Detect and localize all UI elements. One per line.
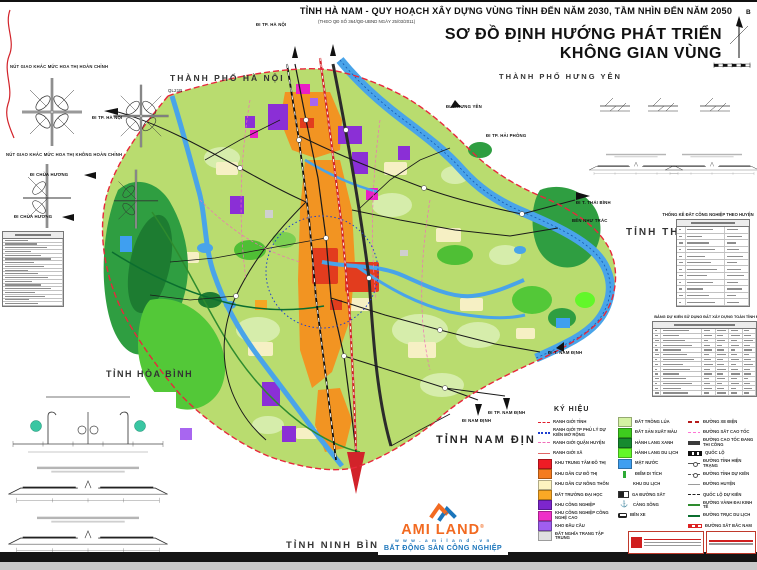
legend-label: ĐẤT SẢN XUẤT MÀU bbox=[635, 430, 688, 435]
table-cell bbox=[702, 372, 715, 376]
table-cell bbox=[702, 348, 715, 352]
legend-swatch bbox=[688, 432, 700, 434]
legend-item: HÀNH LANG XANH bbox=[618, 438, 688, 448]
table-row bbox=[677, 273, 749, 280]
table-cell bbox=[661, 353, 702, 357]
table-row bbox=[677, 234, 749, 241]
legend-label: ĐƯỜNG HUYỆN bbox=[703, 482, 757, 487]
table-cell bbox=[686, 286, 726, 292]
route-label-di-chua-huong-2: ĐI CHÙA HƯƠNG bbox=[14, 214, 52, 219]
table-cell bbox=[3, 295, 63, 298]
table-cell bbox=[743, 353, 756, 357]
legend-item: KHO ĐẦU CẦU bbox=[538, 521, 618, 531]
table-cell bbox=[653, 372, 661, 376]
table-cell bbox=[716, 377, 729, 381]
table-cell bbox=[661, 377, 702, 381]
table-cell bbox=[702, 382, 715, 386]
legend-label: RANH GIỚI QUẬN HUYỆN bbox=[553, 441, 607, 446]
compass-north-label: B bbox=[746, 9, 751, 16]
landuse-table bbox=[652, 321, 757, 397]
legend-swatch bbox=[623, 471, 626, 478]
legend-label: KHO ĐẦU CẦU bbox=[555, 524, 609, 529]
table-row bbox=[677, 293, 749, 300]
legend-label: ĐƯỜNG SẮT BẮC NAM bbox=[705, 524, 757, 529]
table-cell bbox=[661, 386, 702, 390]
legend-item: RANH GIỚI QUẬN HUYỆN bbox=[538, 438, 618, 448]
legend-label: ĐẤT TRỒNG LÚA bbox=[635, 420, 688, 425]
table-cell bbox=[716, 358, 729, 362]
table-cell bbox=[743, 348, 756, 352]
legend-swatch bbox=[618, 491, 629, 498]
legend-label: ĐƯỜNG TỈNH HIỆN TRẠNG bbox=[703, 459, 757, 468]
route-label-di-tp-ha-noi-left: ĐI TP. HÀ NỘI bbox=[92, 115, 122, 120]
table-row bbox=[3, 302, 63, 306]
legend-label: HÀNH LANG XANH bbox=[635, 441, 688, 446]
legend-item: KHU CÔNG NGHIỆP bbox=[538, 500, 618, 510]
table-header bbox=[653, 322, 756, 329]
legend-swatch bbox=[618, 417, 632, 427]
legend-swatch: ⚓ bbox=[618, 502, 630, 509]
table-cell bbox=[3, 243, 63, 246]
table-cell bbox=[661, 391, 702, 395]
legend-item: ĐƯỜNG TRỤC DU LỊCH bbox=[688, 511, 757, 521]
table-cell bbox=[743, 386, 756, 390]
neighbor-label-ninh-binh: TỈNH NINH BÌNH bbox=[286, 540, 388, 551]
table-header bbox=[677, 220, 749, 227]
legend-swatch bbox=[688, 524, 702, 528]
table-cell bbox=[3, 261, 63, 264]
south-route-arrow bbox=[347, 452, 365, 494]
legend-swatch bbox=[538, 521, 552, 531]
table-cell bbox=[716, 372, 729, 376]
legend-column-1: RANH GIỚI TỈNHRANH GIỚI TP PHỦ LÝ DỰ KIẾ… bbox=[538, 417, 618, 542]
logo-brand: AMI LAND® bbox=[401, 523, 485, 538]
stamp-emblem bbox=[631, 537, 642, 548]
table-cell bbox=[725, 286, 749, 292]
table-cell bbox=[3, 269, 63, 272]
legend-item: KHU TRUNG TÂM ĐÔ THỊ bbox=[538, 459, 618, 469]
table-cell bbox=[677, 240, 686, 246]
legend-swatch bbox=[618, 484, 630, 485]
rail-to-hanoi-line bbox=[7, 10, 14, 138]
table-row bbox=[677, 253, 749, 260]
table-cell bbox=[743, 377, 756, 381]
table-row bbox=[677, 260, 749, 267]
table-cell bbox=[716, 348, 729, 352]
legend-swatch bbox=[538, 531, 552, 541]
table-row bbox=[677, 247, 749, 254]
table-cell bbox=[661, 358, 702, 362]
table-cell bbox=[702, 334, 715, 338]
logo-tagline: BẤT ĐỘNG SẢN CÔNG NGHIỆP bbox=[384, 543, 502, 552]
table-cell bbox=[729, 343, 742, 347]
table-cell bbox=[743, 367, 756, 371]
route-label-di-nam-dinh: ĐI NAM ĐỊNH bbox=[462, 418, 491, 423]
table-cell bbox=[653, 367, 661, 371]
table-cell bbox=[677, 286, 686, 292]
legend-swatch bbox=[538, 490, 552, 500]
table-cell bbox=[725, 227, 749, 233]
amiland-logo-icon bbox=[428, 503, 458, 523]
table-cell bbox=[653, 358, 661, 362]
table-cell bbox=[729, 372, 742, 376]
table-cell bbox=[686, 280, 726, 286]
legend-item: ĐƯỜNG SẮT CAO TỐC bbox=[688, 427, 757, 437]
legend-item: ĐƯỜNG SẮT BẮC NAM bbox=[688, 521, 757, 531]
legend-label: KHU TRUNG TÂM ĐÔ THỊ bbox=[555, 461, 609, 466]
table-cell bbox=[653, 391, 661, 395]
table-cell bbox=[743, 391, 756, 395]
table-cell bbox=[686, 293, 726, 299]
document-subtitle: (THEO QĐ SỐ 364/QĐ-UBND NGÀY 25/03/2011) bbox=[318, 19, 415, 24]
table-cell bbox=[653, 329, 661, 333]
legend-swatch bbox=[688, 421, 700, 423]
legend-swatch bbox=[688, 494, 700, 495]
table-cell bbox=[725, 280, 749, 286]
legend-label: ĐƯỜNG XE ĐIỆN bbox=[703, 420, 757, 425]
legend-item: ĐƯỜNG XE ĐIỆN bbox=[688, 417, 757, 427]
table-cell bbox=[653, 362, 661, 366]
legend-label: ĐƯỜNG VÀNH ĐAI KINH TẾ bbox=[703, 501, 757, 510]
legend-label: ĐIỂM DI TÍCH bbox=[635, 472, 688, 477]
table-cell bbox=[661, 329, 702, 333]
legend-item: MẶT NƯỚC bbox=[618, 459, 688, 469]
table-cell bbox=[686, 299, 726, 305]
legend-swatch bbox=[688, 463, 700, 464]
table-cell bbox=[725, 240, 749, 246]
approval-stamp-box bbox=[628, 531, 704, 554]
legend-swatch bbox=[688, 515, 700, 517]
table-cell bbox=[729, 382, 742, 386]
table-cell bbox=[702, 367, 715, 371]
amiland-watermark: AMI LAND® w w w . a m i l a n d . v n BẤ… bbox=[378, 503, 508, 555]
map-title-line1: SƠ ĐỒ ĐỊNH HƯỚNG PHÁT TRIỂN bbox=[430, 26, 722, 44]
table-cell bbox=[653, 343, 661, 347]
table-cell bbox=[686, 227, 726, 233]
route-label-di-tp-hai-phong: ĐI TP. HẢI PHÒNG bbox=[486, 133, 526, 138]
table-cell bbox=[3, 246, 63, 249]
legend-item: ĐẤT TRƯỜNG ĐẠI HỌC bbox=[538, 490, 618, 500]
legend-label: KHU CÔNG NGHIỆP bbox=[555, 503, 609, 508]
legend-item: KHU CÔNG NGHIỆP CÔNG NGHỆ CAO bbox=[538, 511, 618, 521]
table-cell bbox=[653, 339, 661, 343]
table-cell bbox=[743, 362, 756, 366]
table-cell bbox=[3, 291, 63, 294]
legend-label: CẢNG SÔNG bbox=[633, 503, 687, 508]
legend-label: RANH GIỚI XÃ bbox=[553, 451, 607, 456]
table-cell bbox=[729, 353, 742, 357]
legend-label: QUỐC LỘ bbox=[705, 451, 757, 456]
table-cell bbox=[729, 339, 742, 343]
legend-label: RANH GIỚI TỈNH bbox=[553, 420, 607, 425]
legend-item: RANH GIỚI TP PHỦ LÝ DỰ KIẾN MỞ RỘNG bbox=[538, 427, 618, 437]
project-list-table bbox=[2, 231, 64, 307]
table-cell bbox=[743, 329, 756, 333]
table-cell bbox=[729, 329, 742, 333]
table-cell bbox=[725, 260, 749, 266]
table-cell bbox=[716, 391, 729, 395]
legend-item: ĐẤT SẢN XUẤT MÀU bbox=[618, 427, 688, 437]
table-cell bbox=[653, 353, 661, 357]
note-box bbox=[706, 531, 756, 554]
table-cell bbox=[716, 343, 729, 347]
route-label-di-tp-ha-noi-top: ĐI TP. HÀ NỘI bbox=[256, 22, 286, 27]
table-cell bbox=[3, 276, 63, 279]
legend-swatch bbox=[618, 448, 632, 458]
legend-label: ĐƯỜNG TỈNH DỰ KIẾN bbox=[703, 472, 757, 477]
table-cell bbox=[702, 329, 715, 333]
table-row bbox=[677, 299, 749, 306]
legend-swatch bbox=[688, 441, 700, 444]
legend-label: KHU DU LỊCH bbox=[633, 482, 687, 487]
table-cell bbox=[702, 358, 715, 362]
table-row bbox=[677, 227, 749, 234]
table-cell bbox=[653, 348, 661, 352]
table-cell bbox=[686, 260, 726, 266]
table-cell bbox=[686, 234, 726, 240]
legend-title: KÝ HIỆU bbox=[554, 406, 757, 413]
table-cell bbox=[677, 247, 686, 253]
scale-bar bbox=[714, 63, 750, 69]
legend-swatch bbox=[618, 428, 632, 438]
table-cell bbox=[702, 343, 715, 347]
planning-map-sheet: TỈNH HÀ NAM - QUY HOẠCH XÂY DỰNG VÙNG TỈ… bbox=[0, 0, 757, 570]
legend-swatch bbox=[688, 451, 702, 456]
table-cell bbox=[686, 273, 726, 279]
table-cell bbox=[3, 280, 63, 283]
legend-swatch bbox=[618, 438, 632, 448]
table-cell bbox=[661, 343, 702, 347]
table-cell bbox=[677, 253, 686, 259]
table-cell bbox=[661, 334, 702, 338]
table-cell bbox=[729, 334, 742, 338]
legend-swatch bbox=[538, 459, 552, 469]
table-cell bbox=[702, 391, 715, 395]
table-cell bbox=[661, 339, 702, 343]
document-title: TỈNH HÀ NAM - QUY HOẠCH XÂY DỰNG VÙNG TỈ… bbox=[290, 6, 742, 16]
legend-item: QUỐC LỘ DỰ KIẾN bbox=[688, 490, 757, 500]
legend-label: KHU CÔNG NGHIỆP CÔNG NGHỆ CAO bbox=[555, 511, 609, 520]
legend-swatch bbox=[538, 453, 550, 454]
legend-label: ĐƯỜNG CAO TỐC ĐANG THI CÔNG bbox=[703, 438, 757, 447]
table-cell bbox=[3, 302, 63, 305]
legend-item: RANH GIỚI TỈNH bbox=[538, 417, 618, 427]
table-cell bbox=[686, 247, 726, 253]
legend-label: HÀNH LANG DU LỊCH bbox=[635, 451, 688, 456]
legend-item: ĐƯỜNG CAO TỐC ĐANG THI CÔNG bbox=[688, 438, 757, 448]
legend-label: RANH GIỚI TP PHỦ LÝ DỰ KIẾN MỞ RỘNG bbox=[553, 428, 607, 437]
table-row bbox=[677, 266, 749, 273]
landuse-table-title: BẢNG DỰ KIẾN SỬ DỤNG ĐẤT XÂY DỰNG TOÀN T… bbox=[654, 314, 752, 319]
table-cell bbox=[743, 358, 756, 362]
table-cell bbox=[702, 362, 715, 366]
table-header bbox=[3, 232, 63, 239]
table-cell bbox=[661, 382, 702, 386]
legend-swatch bbox=[538, 480, 552, 490]
interchange-title-partial: NÚT GIAO KHÁC MỨC HOA THỊ KHÔNG HOÀN CHỈ… bbox=[6, 152, 122, 157]
legend-item: ĐIỂM DI TÍCH bbox=[618, 469, 688, 479]
legend-item: QUỐC LỘ bbox=[688, 448, 757, 458]
table-cell bbox=[3, 258, 63, 261]
legend-swatch bbox=[618, 513, 627, 518]
legend-item: ĐẤT NGHĨA TRANG TẬP TRUNG bbox=[538, 531, 618, 541]
legend-swatch bbox=[688, 474, 700, 475]
route-label-di-t-thai-binh: ĐI T. THÁI BÌNH bbox=[576, 200, 611, 205]
legend-column-3: ĐƯỜNG XE ĐIỆNĐƯỜNG SẮT CAO TỐCĐƯỜNG CAO … bbox=[688, 417, 757, 542]
table-cell bbox=[3, 265, 63, 268]
table-cell bbox=[725, 293, 749, 299]
table-cell bbox=[686, 240, 726, 246]
table-cell bbox=[743, 372, 756, 376]
table-cell bbox=[743, 382, 756, 386]
table-cell bbox=[725, 234, 749, 240]
table-cell bbox=[743, 339, 756, 343]
route-label-di-t-hung-yen: ĐI T. HƯNG YÊN bbox=[446, 104, 482, 109]
table-cell bbox=[729, 358, 742, 362]
table-cell bbox=[3, 287, 63, 290]
table-cell bbox=[743, 334, 756, 338]
table-cell bbox=[729, 362, 742, 366]
table-cell bbox=[677, 260, 686, 266]
legend-item: ⚓CẢNG SÔNG bbox=[618, 500, 688, 510]
table-cell bbox=[653, 386, 661, 390]
table-cell bbox=[3, 239, 63, 242]
legend-item: ĐẤT TRỒNG LÚA bbox=[618, 417, 688, 427]
route-label-di-t-nam-dinh: ĐI T. NAM ĐỊNH bbox=[548, 350, 582, 355]
table-cell bbox=[677, 293, 686, 299]
table-cell bbox=[725, 273, 749, 279]
legend-item: KHU DÂN CƯ NÔNG THÔN bbox=[538, 479, 618, 489]
legend-label: KHU DÂN CƯ ĐÔ THỊ bbox=[555, 472, 609, 477]
table-cell bbox=[677, 280, 686, 286]
neighbor-label-hung-yen: THÀNH PHỐ HƯNG YÊN bbox=[499, 72, 622, 81]
legend-label: GA ĐƯỜNG SẮT bbox=[632, 493, 686, 498]
legend-swatch bbox=[688, 504, 700, 506]
legend-swatch bbox=[538, 422, 550, 423]
table-cell bbox=[716, 329, 729, 333]
table-cell bbox=[729, 386, 742, 390]
interchange-title-full: NÚT GIAO KHÁC MỨC HOA THỊ HOÀN CHỈNH bbox=[10, 64, 108, 69]
table-cell bbox=[686, 253, 726, 259]
legend-label: ĐƯỜNG TRỤC DU LỊCH bbox=[703, 513, 757, 518]
table-cell bbox=[653, 377, 661, 381]
table-cell bbox=[743, 343, 756, 347]
route-label-di-tp-nam-dinh: ĐI TP. NAM ĐỊNH bbox=[488, 410, 525, 415]
table-cell bbox=[702, 377, 715, 381]
map-title-line2: KHÔNG GIAN VÙNG bbox=[430, 45, 722, 63]
neighbor-label-hoa-binh: TỈNH HÒA BÌNH bbox=[106, 369, 193, 379]
table-cell bbox=[716, 367, 729, 371]
legend-swatch bbox=[538, 511, 552, 521]
legend-swatch bbox=[538, 469, 552, 479]
table-row bbox=[677, 280, 749, 287]
window-edge bbox=[0, 562, 757, 570]
legend-item: HÀNH LANG DU LỊCH bbox=[618, 448, 688, 458]
table-cell bbox=[716, 382, 729, 386]
legend-item: GA ĐƯỜNG SẮT bbox=[618, 490, 688, 500]
table-cell bbox=[653, 334, 661, 338]
table-cell bbox=[729, 367, 742, 371]
legend-item: ĐƯỜNG TỈNH DỰ KIẾN bbox=[688, 469, 757, 479]
table-cell bbox=[3, 272, 63, 275]
legend-columns: RANH GIỚI TỈNHRANH GIỚI TP PHỦ LÝ DỰ KIẾ… bbox=[534, 417, 757, 542]
road-label-ql21b: QL21B bbox=[168, 88, 182, 93]
table-row bbox=[677, 286, 749, 293]
legend-swatch bbox=[538, 432, 550, 434]
table-cell bbox=[716, 339, 729, 343]
table-row bbox=[677, 240, 749, 247]
legend-label: QUỐC LỘ DỰ KIẾN bbox=[703, 493, 757, 498]
industry-table-title: THỐNG KÊ ĐẤT CÔNG NGHIỆP THEO HUYỆN bbox=[660, 212, 756, 217]
sheet-top-border bbox=[0, 0, 757, 2]
table-cell bbox=[702, 339, 715, 343]
legend-item: KHU DU LỊCH bbox=[618, 479, 688, 489]
table-cell bbox=[661, 362, 702, 366]
legend-item: BẾN XE bbox=[618, 511, 688, 521]
table-cell bbox=[661, 367, 702, 371]
table-cell bbox=[677, 234, 686, 240]
neighbor-label-nam-dinh: TỈNH NAM ĐỊNH bbox=[436, 434, 546, 446]
table-cell bbox=[3, 299, 63, 302]
table-cell bbox=[661, 372, 702, 376]
table-cell bbox=[725, 299, 749, 305]
legend-column-2: ĐẤT TRỒNG LÚAĐẤT SẢN XUẤT MÀUHÀNH LANG X… bbox=[618, 417, 688, 542]
legend-item: ĐƯỜNG HUYỆN bbox=[688, 479, 757, 489]
table-cell bbox=[677, 227, 686, 233]
table-cell bbox=[725, 253, 749, 259]
table-cell bbox=[716, 353, 729, 357]
table-cell bbox=[3, 250, 63, 253]
table-cell bbox=[677, 299, 686, 305]
table-cell bbox=[702, 386, 715, 390]
legend-swatch bbox=[538, 500, 552, 510]
legend-item: KHU DÂN CƯ ĐÔ THỊ bbox=[538, 469, 618, 479]
table-cell bbox=[729, 377, 742, 381]
legend-box: KÝ HIỆU RANH GIỚI TỈNHRANH GIỚI TP PHỦ L… bbox=[534, 401, 757, 531]
table-cell bbox=[653, 382, 661, 386]
table-cell bbox=[661, 348, 702, 352]
route-label-di-chua-huong-1: ĐI CHÙA HƯƠNG bbox=[30, 172, 68, 177]
legend-swatch bbox=[538, 442, 550, 443]
table-cell bbox=[677, 266, 686, 272]
table-cell bbox=[702, 353, 715, 357]
table-cell bbox=[3, 284, 63, 287]
legend-swatch bbox=[688, 484, 700, 485]
table-cell bbox=[725, 266, 749, 272]
legend-item: ĐƯỜNG VÀNH ĐAI KINH TẾ bbox=[688, 500, 757, 510]
label-ben-nhu-trac: BẾN NHƯ TRÁC bbox=[572, 218, 608, 223]
legend-swatch bbox=[618, 459, 632, 469]
legend-label: KHU DÂN CƯ NÔNG THÔN bbox=[555, 482, 609, 487]
table-cell bbox=[3, 254, 63, 257]
table-cell bbox=[725, 247, 749, 253]
legend-label: ĐẤT NGHĨA TRANG TẬP TRUNG bbox=[555, 532, 609, 541]
legend-label: BẾN XE bbox=[630, 513, 684, 518]
table-cell bbox=[686, 266, 726, 272]
table-cell bbox=[729, 391, 742, 395]
table-cell bbox=[677, 273, 686, 279]
neighbor-label-ha-noi: THÀNH PHỐ HÀ NỘI bbox=[170, 73, 285, 83]
legend-item: ĐƯỜNG TỈNH HIỆN TRẠNG bbox=[688, 459, 757, 469]
legend-item: RANH GIỚI XÃ bbox=[538, 448, 618, 458]
table-cell bbox=[716, 362, 729, 366]
legend-label: ĐẤT TRƯỜNG ĐẠI HỌC bbox=[555, 493, 609, 498]
registered-mark: ® bbox=[480, 524, 485, 530]
table-cell bbox=[729, 348, 742, 352]
industry-table bbox=[676, 219, 750, 307]
table-cell bbox=[716, 334, 729, 338]
legend-label: MẶT NƯỚC bbox=[635, 461, 688, 466]
